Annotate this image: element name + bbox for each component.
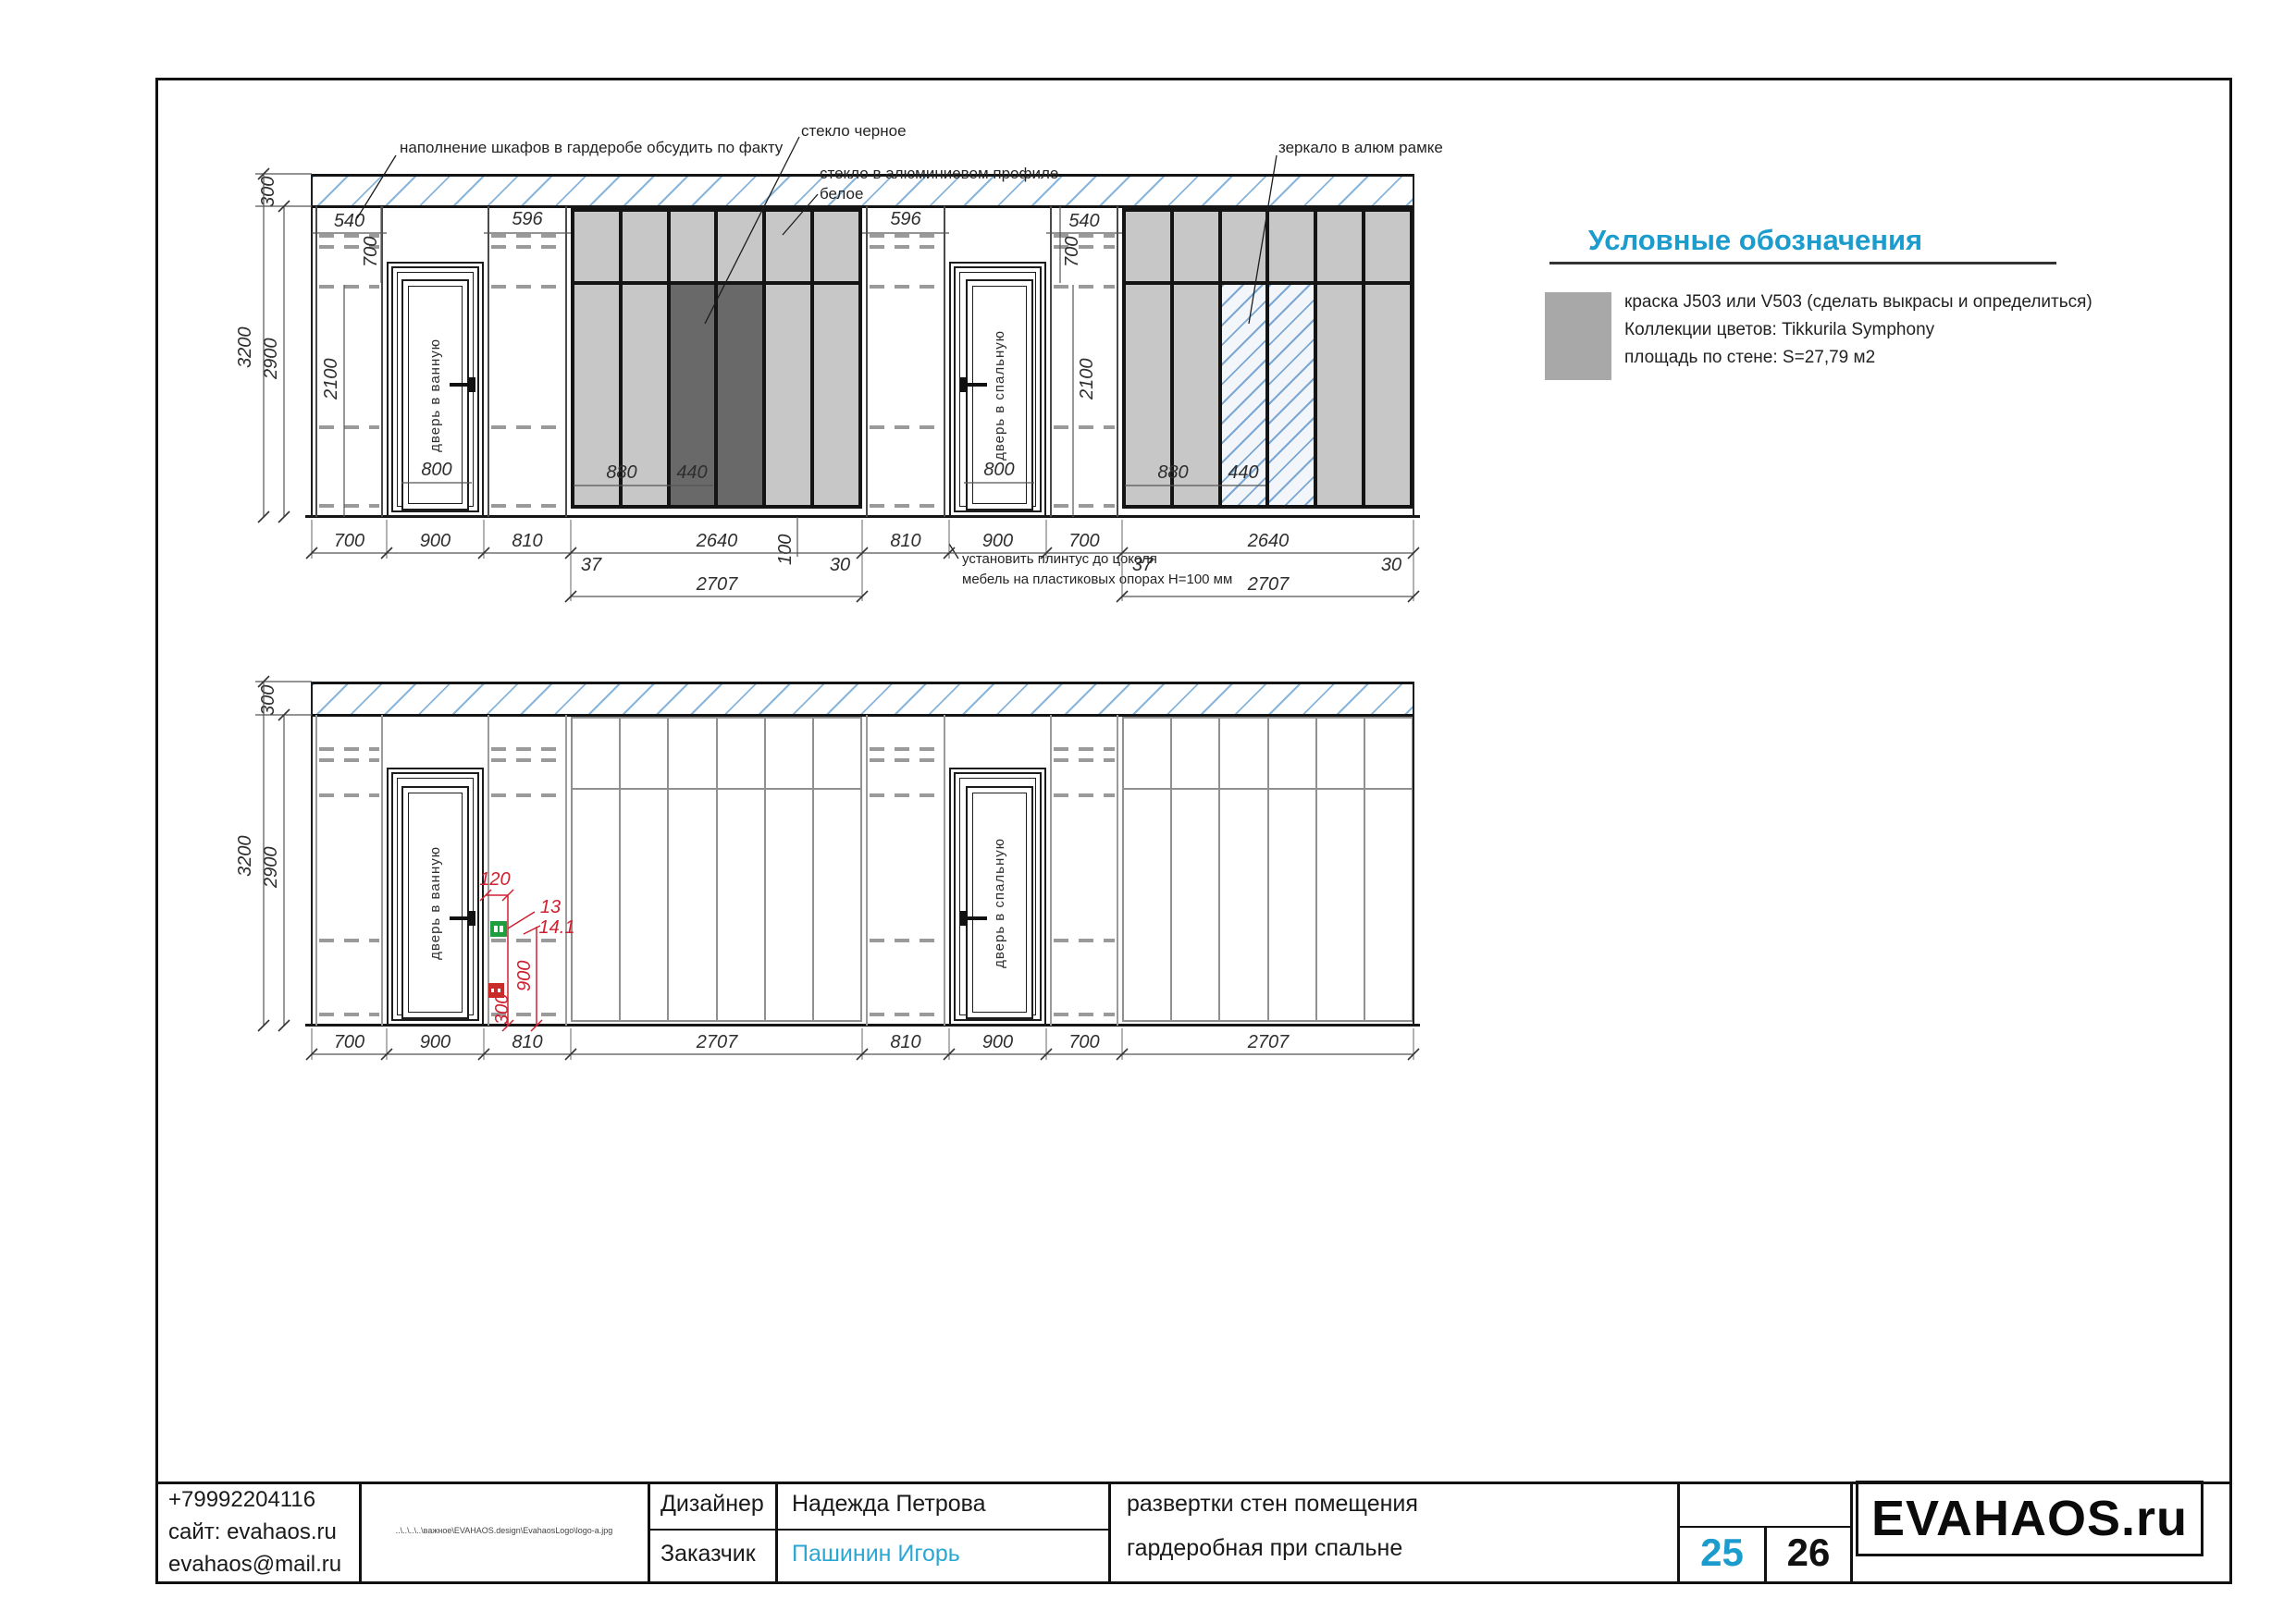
page-total: 26 xyxy=(1767,1531,1850,1575)
client-label: Заказчик xyxy=(660,1541,756,1568)
titleblock-line xyxy=(775,1482,778,1581)
client-name: Пашинин Игорь xyxy=(792,1541,960,1568)
titleblock-line xyxy=(648,1482,650,1581)
drawing-sheet: дверь в ванную дверь в спальную 300 3200 xyxy=(0,0,2296,1623)
contact-site: сайт: evahaos.ru xyxy=(168,1516,337,1549)
titleblock-line xyxy=(1850,1482,1853,1581)
page-current: 25 xyxy=(1680,1531,1764,1575)
contact-email: evahaos@mail.ru xyxy=(168,1548,341,1581)
titleblock-line xyxy=(1108,1482,1111,1581)
logo-file-path: ..\..\..\..\важное\EVAHAOS.design\Evahao… xyxy=(365,1526,643,1535)
titleblock-line xyxy=(648,1529,1108,1531)
designer-name: Надежда Петрова xyxy=(792,1491,986,1518)
designer-label: Дизайнер xyxy=(660,1491,764,1518)
company-logo: EVAHAOS.ru xyxy=(1856,1481,2203,1556)
project-description: гардеробная при спальне xyxy=(1127,1535,1402,1562)
contact-phone: +79992204116 xyxy=(168,1483,315,1517)
leader-and-dimension-lines xyxy=(0,0,2296,1623)
logo-text: EVAHAOS.ru xyxy=(1871,1490,2188,1547)
project-description: развертки стен помещения xyxy=(1127,1491,1418,1518)
titleblock-line xyxy=(359,1482,362,1581)
